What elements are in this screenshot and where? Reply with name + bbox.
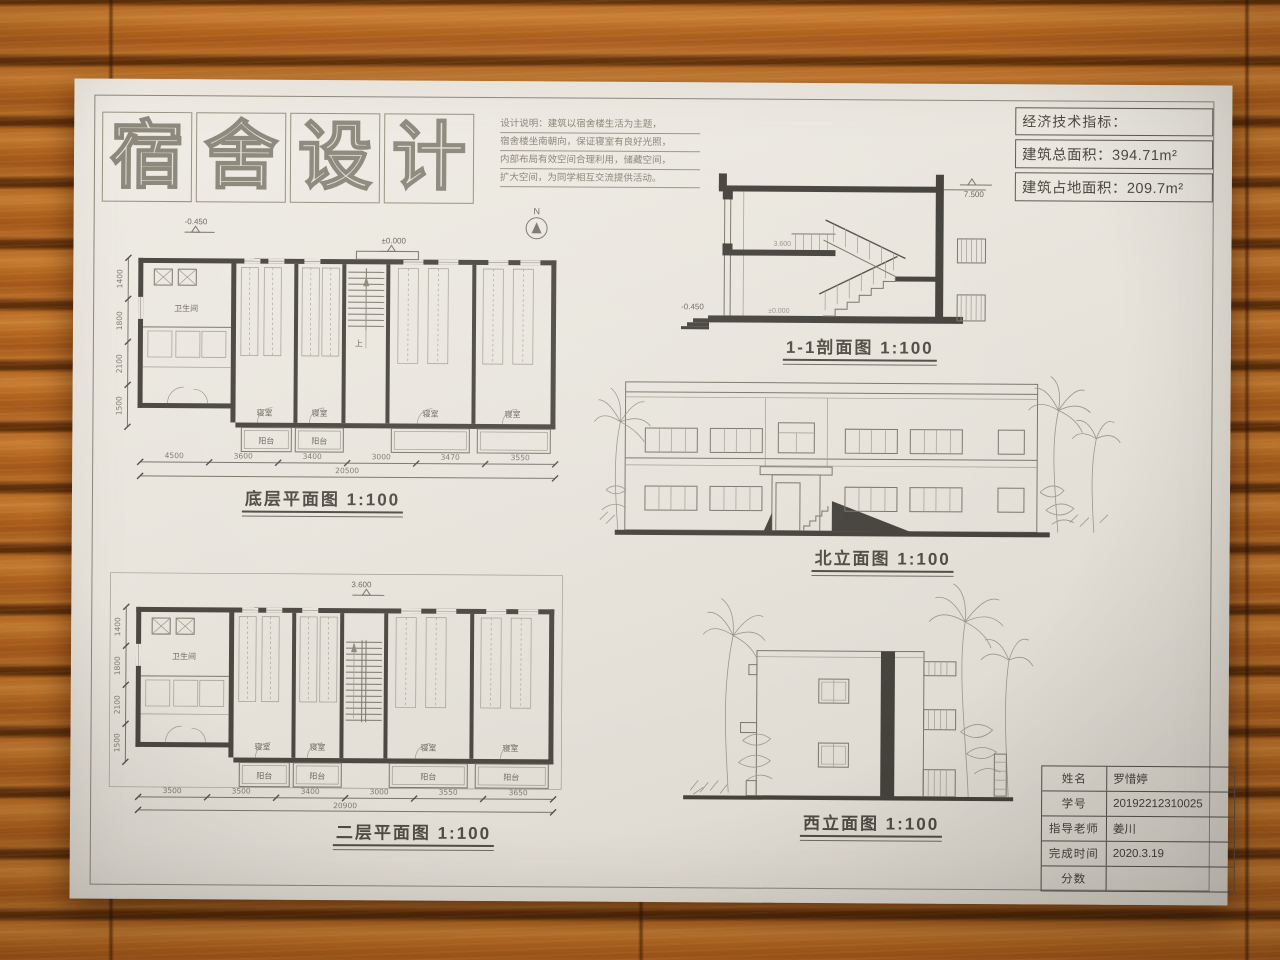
title-block-row-name: 姓名 罗惜婷 <box>1042 766 1234 792</box>
indicator-total-area: 建筑总面积：394.71m² <box>1015 139 1213 169</box>
dim: 1400 <box>115 269 124 288</box>
caption-text: 西立面图 1:100 <box>800 809 942 838</box>
balcony-label: 阳台 <box>256 771 272 781</box>
dim: 3000 <box>372 452 391 461</box>
row-label: 姓名 <box>1042 766 1107 790</box>
bathroom-label: 卫生间 <box>174 303 198 313</box>
section-caption: 1-1剖面图 1:100 <box>783 333 937 366</box>
title-block-row-date: 完成时间 2020.3.19 <box>1042 841 1234 867</box>
north-elevation <box>600 370 1116 558</box>
bedroom-label: 寝室 <box>504 409 520 419</box>
dim: 1400 <box>113 617 122 636</box>
design-notes: 设计说明：建筑以宿舍楼生活为主题， 宿舍楼坐南朝向，保证寝室有良好光照， 内部布… <box>500 117 700 190</box>
dim: 1500 <box>112 733 121 752</box>
indicators-title: 经济技术指标： <box>1015 107 1213 136</box>
level-marker: 7.500 <box>964 190 985 199</box>
west-elevation <box>668 580 1029 817</box>
title-char: 设 <box>290 113 381 204</box>
row-value <box>1107 879 1234 880</box>
dim: 3000 <box>370 787 389 796</box>
row-value: 20192212310025 <box>1107 798 1234 811</box>
design-notes-line: 设计说明：建筑以宿舍楼生活为主题， <box>500 117 700 134</box>
level-marker: ±0.000 <box>768 308 790 315</box>
dim: 3600 <box>234 451 253 460</box>
row-label: 指导老师 <box>1042 816 1107 840</box>
dim: 2100 <box>113 695 122 714</box>
dim-total: 20500 <box>335 466 359 475</box>
dim: 1800 <box>113 656 122 675</box>
indicator-label: 建筑总面积： <box>1022 147 1112 164</box>
dim: 1500 <box>114 396 123 415</box>
title-char: 宿 <box>102 112 193 203</box>
section-drawing: 7.500 3.600 ±0.000 -0.450 <box>673 157 994 339</box>
title-char: 舍 <box>196 112 287 203</box>
balcony-label: 阳台 <box>309 771 325 781</box>
caption-text: 底层平面图 1:100 <box>242 485 403 514</box>
indicator-footprint-area: 建筑占地面积：209.7m² <box>1015 172 1213 202</box>
design-notes-line: 内部布局有效空间合理利用，储藏空间， <box>500 153 700 170</box>
second-plan-caption: 二层平面图 1:100 <box>333 818 494 851</box>
sheet-title: 宿 舍 设 计 <box>102 112 475 204</box>
photo-background: 宿 舍 设 计 设计说明：建筑以宿舍楼生活为主题， 宿舍楼坐南朝向，保证寝室有良… <box>0 0 1280 960</box>
indicator-value: 209.7m² <box>1127 181 1184 197</box>
balcony-label: 阳台 <box>420 772 436 782</box>
dim: 1800 <box>115 311 124 330</box>
title-block: 姓名 罗惜婷 学号 20192212310025 指导老师 姜川 完成时间 20… <box>1041 765 1236 892</box>
dim: 3550 <box>439 788 458 797</box>
ground-floor-plan: 卫生间 上 <box>97 209 644 502</box>
row-value: 2020.3.19 <box>1107 848 1234 861</box>
design-notes-line: 扩大空间，为同学相互交流提供活动。 <box>500 171 700 188</box>
bedroom-label: 寝室 <box>311 408 327 418</box>
caption-text: 北立面图 1:100 <box>812 544 954 573</box>
stair-up-label: 上 <box>355 339 363 348</box>
title-block-row-score: 分数 <box>1042 866 1234 891</box>
level-marker: ±0.000 <box>382 236 407 245</box>
ground-plan-caption: 底层平面图 1:100 <box>242 485 403 518</box>
title-block-row-advisor: 指导老师 姜川 <box>1042 816 1234 842</box>
indicator-label: 建筑占地面积： <box>1022 180 1127 197</box>
balcony-label: 阳台 <box>503 772 519 782</box>
bathroom-label: 卫生间 <box>172 651 196 661</box>
second-floor-plan: 卫生间 <box>95 549 642 822</box>
west-elevation-caption: 西立面图 1:100 <box>800 809 942 842</box>
dim: 2100 <box>115 354 124 373</box>
level-marker: -0.450 <box>681 302 704 311</box>
indicator-value: 394.71m² <box>1112 148 1177 164</box>
balcony-label: 阳台 <box>258 436 274 446</box>
caption-text: 1-1剖面图 1:100 <box>783 333 937 362</box>
dim-total: 20900 <box>333 801 357 810</box>
title-char: 计 <box>384 113 475 204</box>
level-marker: 3.600 <box>773 241 791 248</box>
caption-text: 二层平面图 1:100 <box>333 818 494 847</box>
dim: 3400 <box>301 787 320 796</box>
row-label: 完成时间 <box>1042 841 1107 865</box>
wood-seam <box>1244 0 1250 960</box>
economic-indicators: 经济技术指标： 建筑总面积：394.71m² 建筑占地面积：209.7m² <box>1015 107 1214 206</box>
balcony-label: 阳台 <box>311 436 327 446</box>
dim: 4500 <box>165 451 184 460</box>
design-notes-line: 宿舍楼坐南朝向，保证寝室有良好光照， <box>500 135 700 152</box>
row-label: 分数 <box>1042 866 1107 890</box>
dim: 3500 <box>232 786 251 795</box>
dim: 3550 <box>511 453 530 462</box>
entry-level-marker: -0.450 <box>185 217 208 226</box>
level-marker: 3.600 <box>351 580 372 589</box>
dim: 3500 <box>163 786 182 795</box>
dim: 3470 <box>441 453 460 462</box>
row-value: 姜川 <box>1107 821 1234 838</box>
row-label: 学号 <box>1042 791 1107 815</box>
title-block-row-student-id: 学号 20192212310025 <box>1042 791 1234 817</box>
north-elevation-caption: 北立面图 1:100 <box>811 544 953 577</box>
bedroom-label: 寝室 <box>422 409 438 419</box>
dim: 3650 <box>509 788 528 797</box>
drawing-sheet: 宿 舍 设 计 设计说明：建筑以宿舍楼生活为主题， 宿舍楼坐南朝向，保证寝室有良… <box>70 78 1233 905</box>
row-value: 罗惜婷 <box>1107 771 1234 788</box>
dim: 3400 <box>303 452 322 461</box>
